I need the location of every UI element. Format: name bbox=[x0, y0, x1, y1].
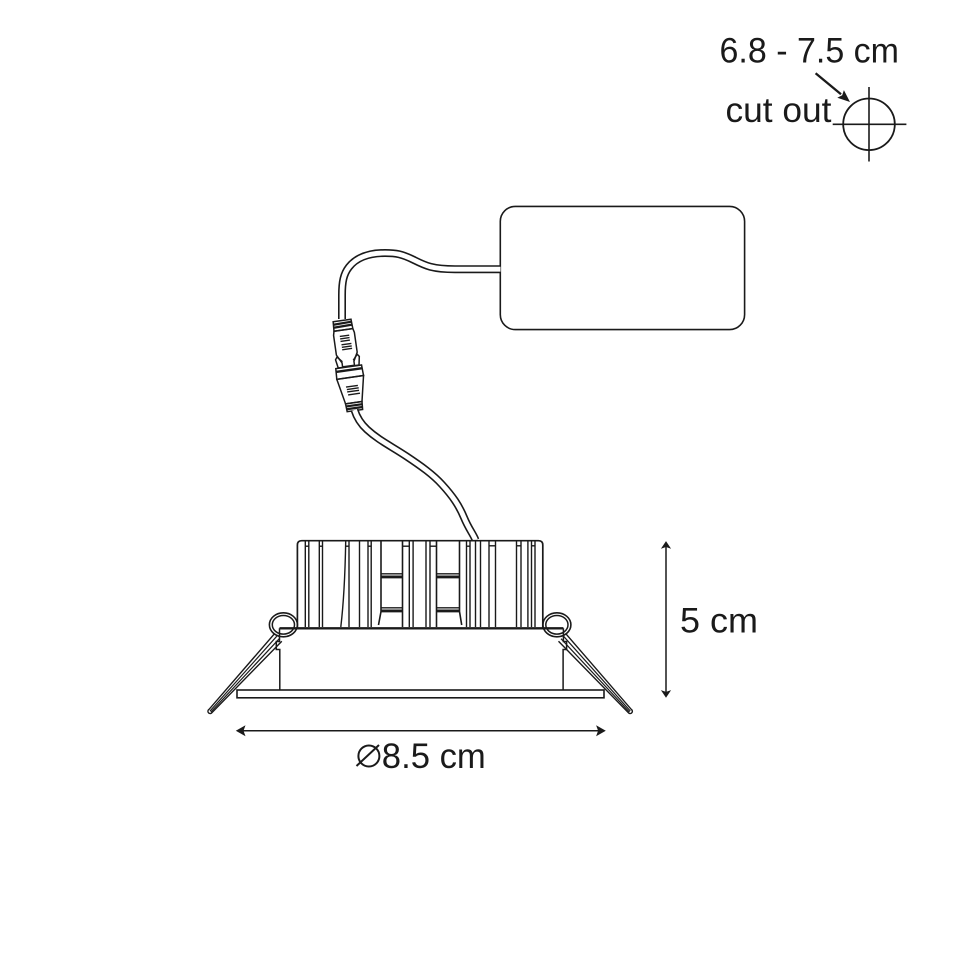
svg-text:8.5 cm: 8.5 cm bbox=[382, 736, 486, 776]
svg-text:cut out: cut out bbox=[726, 90, 832, 130]
svg-text:5 cm: 5 cm bbox=[680, 601, 758, 641]
svg-text:6.8 - 7.5 cm: 6.8 - 7.5 cm bbox=[720, 30, 900, 70]
